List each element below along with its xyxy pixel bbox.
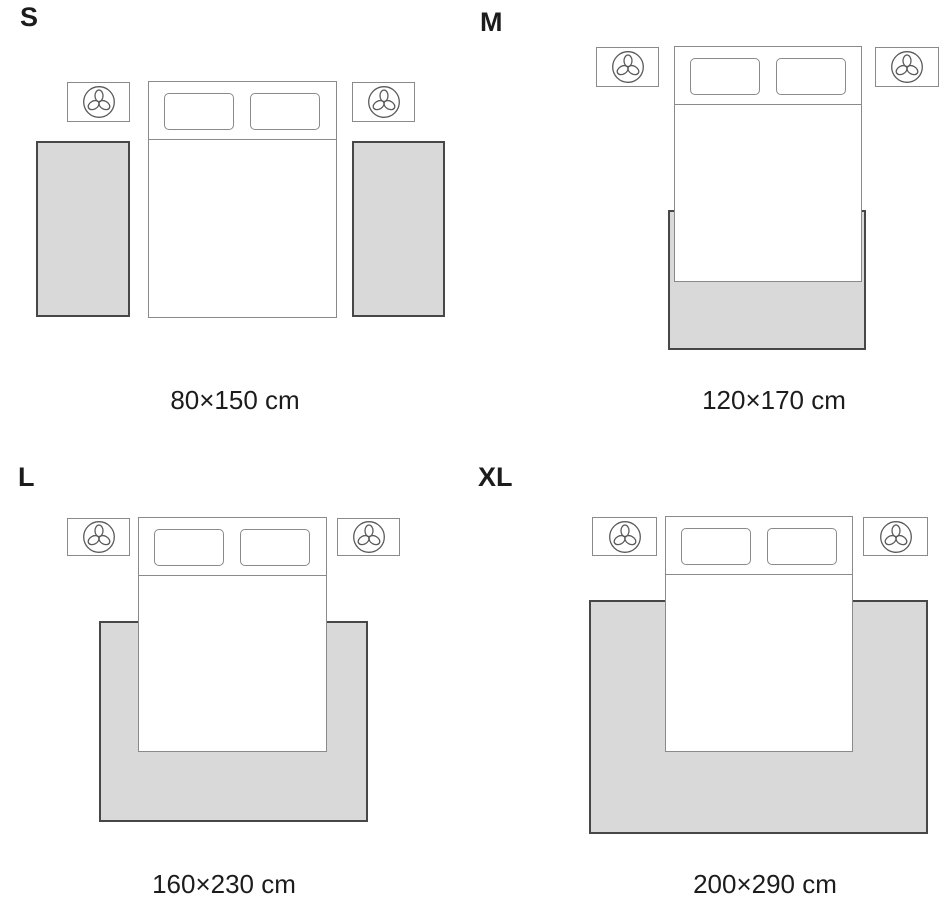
bed-headboard	[139, 518, 326, 576]
nightstand	[875, 47, 939, 87]
plant-icon	[890, 50, 924, 84]
rug-dimension-label: 120×170 cm	[674, 386, 874, 416]
rug-dimension-label: 80×150 cm	[135, 386, 335, 416]
bedside-rug-right	[352, 141, 445, 317]
pillow	[690, 58, 760, 95]
nightstand	[67, 518, 130, 556]
plant-icon	[82, 85, 116, 119]
rug-size-guide: S 80×150 cm	[0, 0, 950, 900]
bed-headboard	[149, 82, 336, 140]
bed	[148, 81, 337, 318]
plant-icon	[879, 520, 913, 554]
size-panel-m: M 120×170 cm	[475, 0, 950, 450]
bed	[138, 517, 327, 752]
plant-icon	[367, 85, 401, 119]
size-label-xl: XL	[478, 464, 513, 491]
plant-icon	[608, 520, 642, 554]
bed-headboard	[675, 47, 861, 105]
pillow	[767, 528, 837, 565]
rug-dimension-label: 200×290 cm	[665, 870, 865, 900]
bed-headboard	[666, 517, 852, 575]
nightstand	[67, 82, 130, 122]
size-label-s: S	[20, 4, 38, 31]
pillow	[250, 93, 320, 130]
nightstand	[352, 82, 415, 122]
pillow	[164, 93, 234, 130]
plant-icon	[82, 520, 116, 554]
nightstand	[337, 518, 400, 556]
bed	[674, 46, 862, 282]
bedside-rug-left	[36, 141, 130, 317]
plant-icon	[611, 50, 645, 84]
rug-dimension-label: 160×230 cm	[124, 870, 324, 900]
size-panel-xl: XL 200×290 cm	[475, 450, 950, 900]
bed	[665, 516, 853, 752]
size-panel-s: S 80×150 cm	[0, 0, 475, 450]
plant-icon	[352, 520, 386, 554]
nightstand	[596, 47, 659, 87]
nightstand	[863, 517, 928, 556]
pillow	[154, 529, 224, 566]
size-panel-l: L 160×230 cm	[0, 450, 475, 900]
pillow	[240, 529, 310, 566]
pillow	[776, 58, 846, 95]
pillow	[681, 528, 751, 565]
size-label-l: L	[18, 464, 35, 491]
nightstand	[592, 517, 657, 556]
size-label-m: M	[480, 9, 503, 36]
